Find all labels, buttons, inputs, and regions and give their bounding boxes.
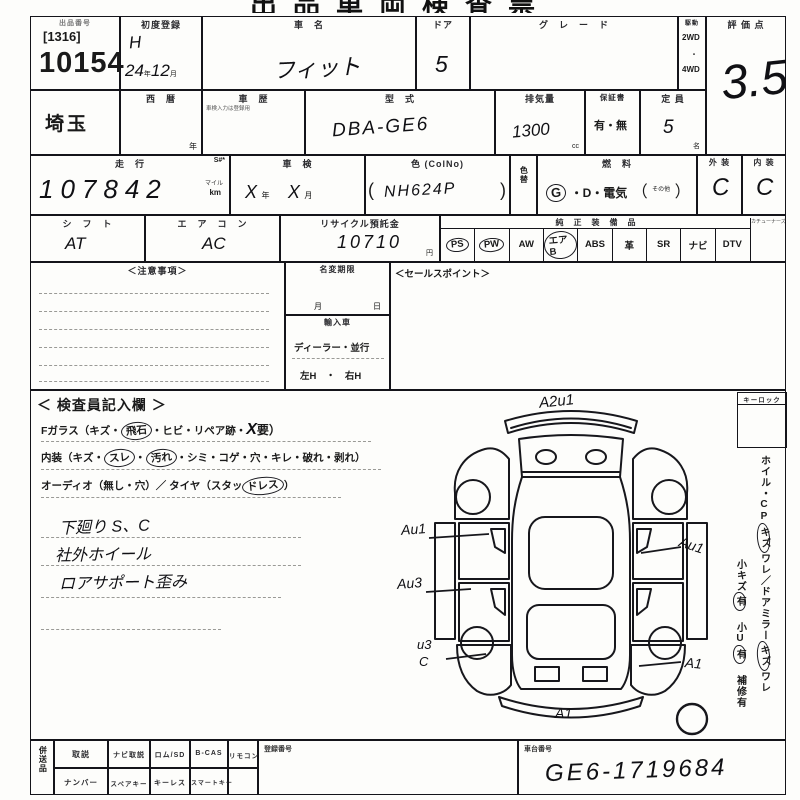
mileage-label: 走 行 xyxy=(31,157,229,170)
accessory-rom-sd: ロム/SD xyxy=(150,740,190,768)
color-box: 色 (ColNo) ( NH624P ) xyxy=(365,155,510,215)
car-name-label: 車 名 xyxy=(203,18,415,31)
accessory-smart-key: スマートキー xyxy=(190,768,228,795)
equipment-item: PW xyxy=(474,228,508,261)
name-change-label: 名変期限 xyxy=(286,264,389,275)
name-change-box: 名変期限 月 日 xyxy=(285,262,390,315)
first-registration-box: 初度登録 H 24年12月 xyxy=(120,16,202,90)
color-change-label: 色替 xyxy=(519,166,527,184)
seireki-unit: 年 xyxy=(189,141,197,152)
equipment-side-note: カチューナーズ xyxy=(750,218,783,263)
diagram-annotation-lines xyxy=(31,391,787,741)
import-box: 輸入車 ディーラー・並行 左H ・ 右H xyxy=(285,315,390,390)
equipment-item: ナビ xyxy=(680,228,714,261)
score-box: 評 価 点 3.5 xyxy=(706,16,786,155)
mileage-s-label: S#* xyxy=(214,157,225,164)
accessory-spare-key: スペアキー xyxy=(108,768,150,795)
annotation-circled-ari1: 有 xyxy=(732,591,746,611)
accessory-label: スマートキー xyxy=(191,778,227,787)
fuel-options: ・D・電気 xyxy=(571,186,628,200)
fuel-label: 燃 料 xyxy=(538,157,696,170)
seireki-label: 西 暦 xyxy=(121,92,201,105)
door-value: 5 xyxy=(435,51,448,78)
lot-bracket: [1316] xyxy=(43,29,81,44)
score-label: 評 価 点 xyxy=(707,18,785,31)
recycle-unit: 円 xyxy=(426,248,433,258)
small-damage-annotation: 小キズ有 小U有 補修有 xyxy=(733,559,746,739)
aircon-value: AC xyxy=(202,234,226,254)
model-code-label: 型 式 xyxy=(306,92,494,105)
chassis-number-value: GE6-1719684 xyxy=(545,754,728,788)
first-registration-label: 初度登録 xyxy=(121,18,201,31)
accessory-remote: リモコン xyxy=(228,740,258,768)
shaken-year-unit: 年 xyxy=(261,191,269,200)
keylock-label: キーロック xyxy=(738,394,786,405)
capacity-label: 定 員 xyxy=(641,92,705,105)
annotation-text6: 補修有 xyxy=(735,664,746,708)
recycle-box: リサイクル預託金 10710 円 xyxy=(280,215,440,262)
accessory-navi-manual: ナビ取説 xyxy=(108,740,150,768)
first-registration-era: H xyxy=(128,33,142,54)
shift-value: AT xyxy=(65,234,85,254)
mileage-unit-km: km xyxy=(209,188,221,197)
accessory-label: キーレス xyxy=(151,778,189,788)
accessories-group-label: 併送品 xyxy=(38,746,46,773)
seireki-box: 西 暦 年 xyxy=(120,90,202,155)
page-title-text: 出品車両検査票 xyxy=(250,0,720,13)
displacement-unit: cc xyxy=(572,143,579,150)
name-change-month: 月 xyxy=(314,301,322,312)
warranty-box: 保証書 有・無 xyxy=(585,90,640,155)
name-change-day: 日 xyxy=(373,301,381,312)
auction-sheet: 出品車両検査票 出品番号 [1316] 10154 初度登録 H 24年12月 … xyxy=(0,0,800,800)
grade-label: グ レ ー ド xyxy=(471,18,677,31)
drive-separator: ・ xyxy=(690,49,698,60)
chassis-number-label: 車台番号 xyxy=(524,744,552,754)
aircon-label: エ ア コ ン xyxy=(146,217,279,230)
accessory-label: リモコン xyxy=(229,750,257,760)
mileage-box: 走 行 S#* 107842 マイル km xyxy=(30,155,230,215)
interior-value: C xyxy=(756,174,773,202)
annotation-text4: 小キズ xyxy=(735,559,746,592)
mileage-value: 107842 xyxy=(39,174,168,205)
year-unit: 年 xyxy=(144,71,151,78)
shaken-box: 車 検 X 年 X 月 xyxy=(230,155,365,215)
recycle-value: 10710 xyxy=(337,232,402,253)
drive-4wd: 4WD xyxy=(682,65,700,74)
exterior-grade-box: 外 装 C xyxy=(697,155,742,215)
sales-point-box: ＜セールスポイント＞ xyxy=(390,262,786,390)
equipment-item: PS xyxy=(441,228,474,261)
inspection-area: ＜ 検査員記入欄 ＞ Fガラス（キズ・飛石・ヒビ・リペア跡・X要） 内装（キズ・… xyxy=(30,390,786,740)
capacity-value: 5 xyxy=(663,117,674,139)
registration-number-box: 登録番号 xyxy=(258,740,518,795)
lot-number-box: 出品番号 [1316] 10154 xyxy=(30,16,120,90)
annotation-circled-ari2: 有 xyxy=(732,644,746,664)
equipment-item: ABS xyxy=(577,228,611,261)
recycle-label: リサイクル預託金 xyxy=(281,217,439,230)
damage-code-left-au3: Au3 xyxy=(396,574,422,592)
stamp-circle xyxy=(677,704,707,734)
color-value: NH624P xyxy=(384,180,457,202)
keylock-box: キーロック xyxy=(737,392,787,448)
mileage-unit-mile: マイル xyxy=(205,178,223,187)
accessory-manual: 取説 xyxy=(54,740,108,768)
notice-label: ＜注意事項＞ xyxy=(31,264,284,277)
damage-code-rear-a1: A1 xyxy=(555,705,572,721)
fuel-paren-close: ） xyxy=(675,184,691,201)
lot-number: 10154 xyxy=(39,47,125,80)
door-label: ドア xyxy=(417,18,469,31)
annotation-circled-kizu1: キズ xyxy=(756,523,771,554)
chassis-number-box: 車台番号 GE6-1719684 xyxy=(518,740,786,795)
capacity-unit: 名 xyxy=(693,141,700,151)
shareki-note: 車検入力は登録用 xyxy=(206,104,250,112)
equipment-item: AW xyxy=(509,228,543,261)
damage-code-left-au1: Au1 xyxy=(400,520,426,538)
fuel-box: 燃 料 G ・D・電気 （ その他 ） xyxy=(537,155,697,215)
registration-number-label: 登録番号 xyxy=(264,744,292,754)
color-paren-close: ) xyxy=(500,180,506,201)
shaken-month-value: X xyxy=(288,182,300,202)
drive-box: 駆動 2WD ・ 4WD xyxy=(678,16,706,90)
equipment-item: DTV xyxy=(715,228,749,261)
page-title: 出品車両検査票 xyxy=(250,0,720,13)
accessory-label: スペアキー xyxy=(109,778,149,788)
annotation-text2: ワレ／ドアミラー xyxy=(759,553,770,641)
equipment-item: エアB xyxy=(543,228,577,261)
fuel-paren-open: （ xyxy=(632,184,648,201)
damage-code-right-a1: A1 xyxy=(684,654,703,672)
car-name-box: 車 名 フィット xyxy=(202,16,416,90)
annotation-text: ホイル・CP xyxy=(759,455,770,523)
first-registration-month: 12 xyxy=(151,61,170,80)
accessory-label: B-CAS xyxy=(191,750,227,757)
accessory-empty xyxy=(228,768,258,795)
accessory-label: ナンバー xyxy=(55,777,107,788)
exterior-label: 外 装 xyxy=(698,157,741,168)
equipment-item: SR xyxy=(646,228,680,261)
prefecture-box: 埼玉 xyxy=(30,90,120,155)
color-label: 色 (ColNo) xyxy=(366,157,509,170)
score-value: 3.5 xyxy=(718,50,790,112)
import-label: 輸入車 xyxy=(286,317,389,328)
accessory-label: 取説 xyxy=(55,749,107,760)
shaken-label: 車 検 xyxy=(231,157,364,170)
fuel-other: その他 xyxy=(652,187,670,193)
exterior-value: C xyxy=(711,173,731,202)
displacement-value: 1300 xyxy=(511,119,550,142)
damage-code-front-a2u1: A2u1 xyxy=(538,391,575,412)
first-registration-year: 24 xyxy=(125,61,144,80)
damage-code-left-c: C xyxy=(419,654,428,669)
accessories-group-box: 併送品 xyxy=(30,740,54,795)
month-unit: 月 xyxy=(170,71,177,78)
sales-point-label: ＜セールスポイント＞ xyxy=(395,266,490,280)
notice-box: ＜注意事項＞ xyxy=(30,262,285,390)
warranty-label: 保証書 xyxy=(586,92,639,103)
accessory-number-plate: ナンバー xyxy=(54,768,108,795)
accessory-keyless: キーレス xyxy=(150,768,190,795)
interior-grade-box: 内 装 C xyxy=(742,155,786,215)
wheel-mirror-annotation: ホイル・CPキズワレ／ドアミラーキズワレ xyxy=(757,455,770,740)
capacity-box: 定 員 5 名 xyxy=(640,90,706,155)
door-box: ドア 5 xyxy=(416,16,470,90)
annotation-text3: ワレ xyxy=(759,671,770,693)
equipment-items: PS PW AW エアB ABS 革 SR ナビ DTV xyxy=(441,228,749,261)
fuel-gasoline: G xyxy=(545,183,567,203)
drive-2wd: 2WD xyxy=(682,33,700,42)
displacement-label: 排気量 xyxy=(496,92,584,105)
car-name-value: フィット xyxy=(272,49,361,86)
model-code-box: 型 式 DBA-GE6 xyxy=(305,90,495,155)
import-handle-side: 左H ・ 右H xyxy=(300,368,361,382)
shift-box: シ フ ト AT xyxy=(30,215,145,262)
accessory-label: ナビ取説 xyxy=(109,750,149,760)
accessory-bcas: B-CAS xyxy=(190,740,228,768)
drive-label: 駆動 xyxy=(679,18,705,27)
import-dealer-parallel: ディーラー・並行 xyxy=(294,340,369,354)
shaken-year-value: X xyxy=(245,182,257,202)
shift-label: シ フ ト xyxy=(31,217,144,230)
accessory-label: ロム/SD xyxy=(151,750,189,760)
model-code-value: DBA-GE6 xyxy=(331,114,430,143)
damage-code-left-u3: u3 xyxy=(417,637,431,652)
annotation-text5: 小U xyxy=(735,611,746,645)
equipment-item: 革 xyxy=(612,228,646,261)
equipment-box: 純 正 装 備 品 カチューナーズ PS PW AW エアB ABS 革 SR … xyxy=(440,215,786,262)
shareki-box: 車 歴 車検入力は登録用 xyxy=(202,90,305,155)
annotation-circled-kizu2: キズ xyxy=(756,641,771,672)
grade-box: グ レ ー ド xyxy=(470,16,678,90)
aircon-box: エ ア コ ン AC xyxy=(145,215,280,262)
prefecture-value: 埼玉 xyxy=(45,109,89,136)
displacement-box: 排気量 1300 cc xyxy=(495,90,585,155)
lot-label: 出品番号 xyxy=(31,18,119,28)
color-paren-open: ( xyxy=(368,180,374,201)
warranty-value: 有・無 xyxy=(594,117,627,133)
color-change-box: 色替 xyxy=(510,155,537,215)
interior-label: 内 装 xyxy=(743,157,785,168)
shaken-month-unit: 月 xyxy=(304,191,312,200)
